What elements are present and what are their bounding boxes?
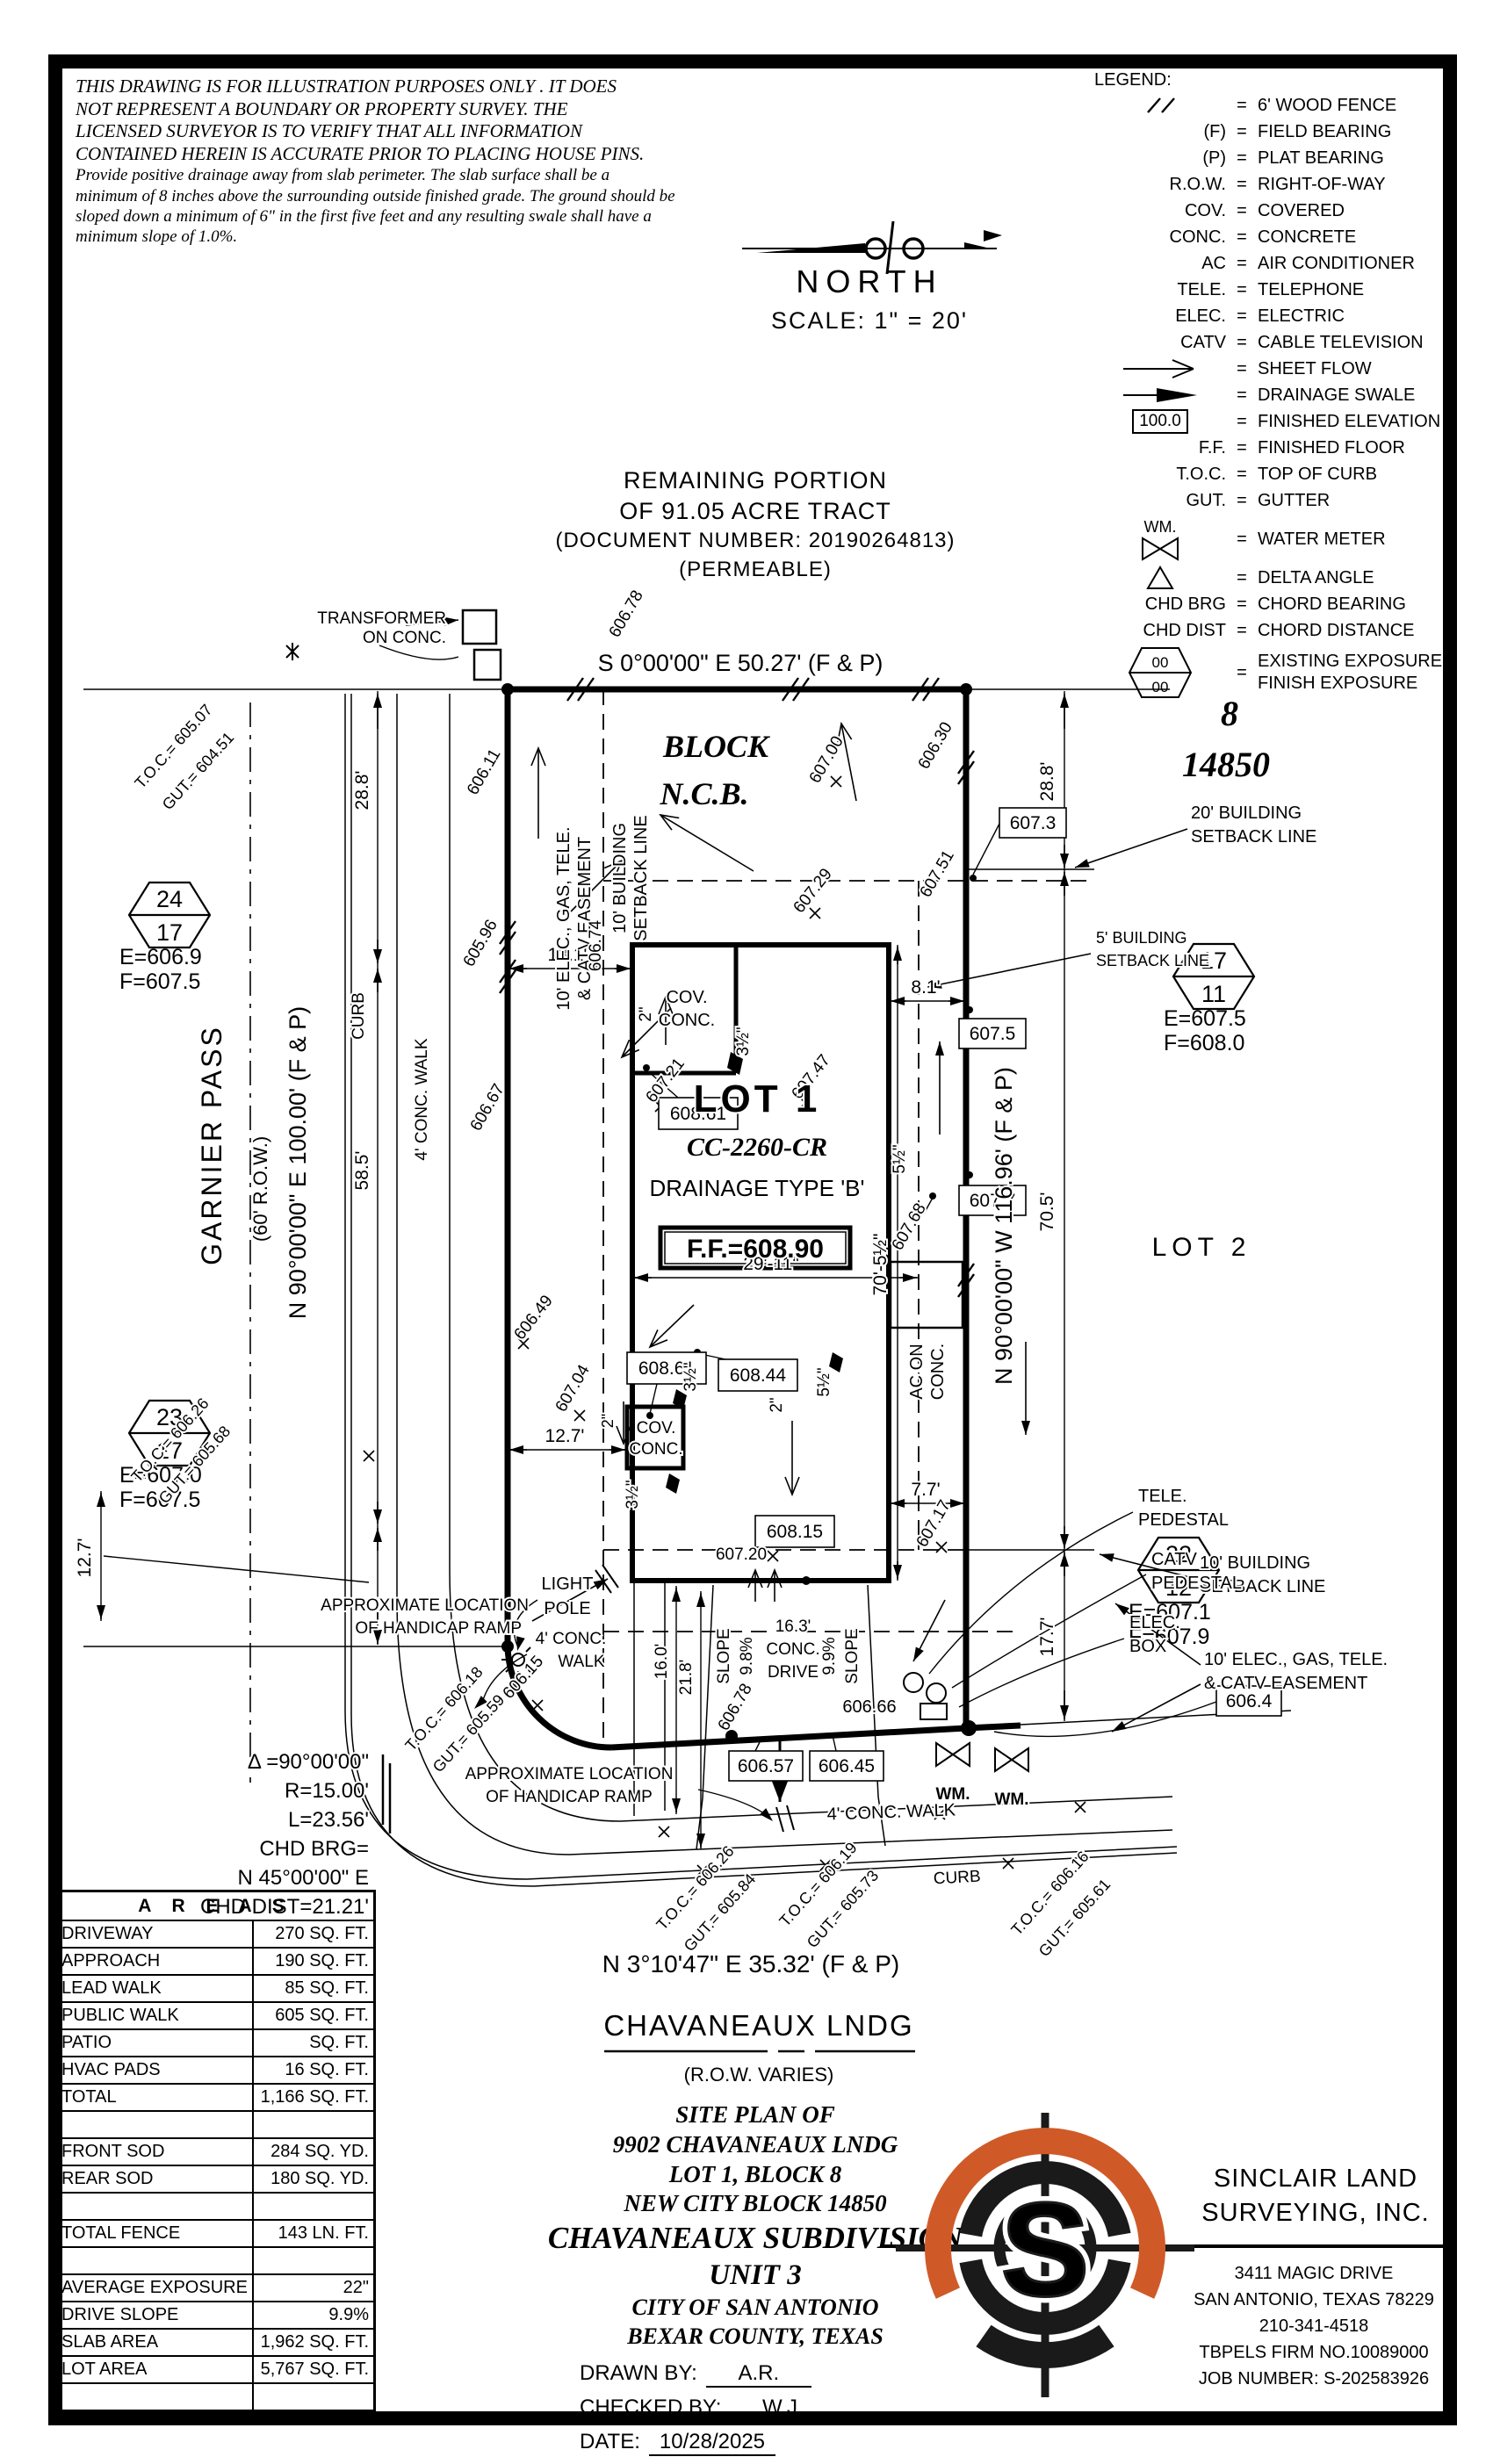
areas-label [56,2247,253,2274]
areas-label: TOTAL FENCE [56,2220,253,2247]
elev-607-3-value: 607.3 [1010,813,1057,833]
arrow-shaft [660,815,754,871]
leader-line-1 [973,824,999,875]
label-easement-south-1: 10' ELEC., GAS, TELE. [1204,1650,1388,1669]
areas-value: 1,962 SQ. FT. [253,2329,375,2356]
label-spot-606-49: 606.49 [510,1292,556,1344]
water-meter-icon [936,1743,970,1766]
legend-equals: = [1226,491,1258,511]
arrow-47 [672,1588,681,1602]
label-bearing-east: N 90°00'00" W 116.96' (F & P) [991,1067,1017,1385]
arrow-31 [1060,872,1069,896]
svg-text:00: 00 [1152,654,1169,671]
legend-symbol-text: CATV [1094,333,1226,353]
arrow-24 [373,940,382,963]
areas-value: SQ. FT. [253,2029,375,2057]
label-tele-pedestal-1: TELE. [1138,1487,1187,1506]
leader-line-5 [650,1384,657,1414]
label-dim-5half-1: 5½" [891,1144,909,1173]
label-cov-conc-2a: COV. [637,1419,676,1437]
point-dot-1 [501,683,514,695]
areas-value [253,2383,375,2411]
x-mark-13 [1003,1858,1013,1869]
disclaimer-line-3: LICENSED SURVEYOR IS TO VERIFY THAT ALL … [76,120,736,143]
firm-address-line-3: 210-341-4518 [1165,2313,1463,2339]
legend-item-telephone: TELE.=TELEPHONE [1094,277,1449,303]
legend-symbol-text: AC [1094,254,1226,274]
transformer-pad-icon [474,650,501,680]
legend-symbol-text: ELEC. [1094,306,1226,327]
label-light-pole-2: POLE [544,1599,590,1618]
water-meter-icon [995,1748,1028,1771]
arrow-head [509,1445,523,1454]
arrow-1 [531,748,545,839]
north-label: NORTH [720,263,1019,300]
disclaimer-line-7: sloped down a minimum of 6" in the first… [76,206,736,227]
arrow-head [373,1528,382,1542]
legend-symbol: F.F. [1094,438,1226,458]
legend-symbol-text: R.O.W. [1094,175,1226,195]
label-light-pole-1: LIGHT [542,1574,594,1594]
arrow-40 [948,997,964,1005]
arrow-head [1060,1705,1069,1719]
elev-606-4-value: 606.4 [1226,1691,1273,1711]
legend-label: DRAINAGE SWALE [1258,385,1415,407]
x-mark-2 [810,908,820,919]
legend-label: TELEPHONE [1258,279,1364,301]
legend-item-water-meter: WM.=WATER METER [1094,514,1449,565]
label-dim-3half-2: 3½" [682,1362,700,1391]
arrow-head [617,964,631,973]
legend-equals: = [1226,227,1258,248]
label-spot-606-78-drive: 606.78 [715,1681,756,1734]
legend-equals: = [1226,175,1258,195]
drainage-swale-icon [1122,385,1199,405]
arrow-head [893,1565,902,1579]
label-ncb-number: 14850 [1182,745,1270,784]
label-dim-3half-3: 3½" [624,1480,642,1509]
elev-607-5: 607.5 [959,1019,1026,1048]
tract-note-line-1: REMAINING PORTION [479,465,1032,496]
label-spot-606-74: 606.74 [587,920,605,972]
arrow-head [97,1493,105,1507]
elev-606-57: 606.57 [729,1751,803,1781]
remaining-tract-note: REMAINING PORTIONOF 91.05 ACRE TRACT (DO… [479,465,1032,584]
disclaimer-line-1: THIS DRAWING IS FOR ILLUSTRATION PURPOSE… [76,76,736,98]
label-ff-elevation: F.F.=608.90 [687,1235,824,1264]
areas-value: 1,166 SQ. FT. [253,2084,375,2111]
label-ac-on-conc-1: AC ON [907,1344,927,1399]
arrow-head [950,997,964,1005]
label-dim-28-8-west: 28.8' [352,771,372,811]
legend-label: FINISHED FLOOR [1258,437,1405,459]
transformer-icon [463,610,496,644]
legend-symbol [1094,357,1226,380]
arrow-11 [748,1570,762,1602]
arrow-head [771,1779,789,1802]
point-dot-2 [960,683,972,695]
arrow-head [1060,854,1069,868]
arrow-head [1075,859,1090,868]
areas-label: DRIVEWAY [56,1920,253,1948]
legend-equals: = [1226,201,1258,221]
arrow-41 [891,1499,906,1508]
legend-symbol: 100.0 [1094,409,1226,434]
arrow-15 [785,1421,799,1495]
legend-symbol: CHD BRG [1094,594,1226,615]
areas-label [56,2383,253,2411]
arrow-3 [838,724,856,801]
legend-item-concrete: CONC.=CONCRETE [1094,224,1449,250]
label-cov-conc-1b: CONC. [659,1011,715,1030]
disclaimer-line-4: CONTAINED HEREIN IS ACCURATE PRIOR TO PL… [76,143,736,166]
label-street-south-name: CHAVANEAUX LNDG [603,2009,913,2042]
label-slope-1a: SLOPE [715,1628,733,1683]
legend-label: WATER METER [1258,529,1386,551]
legend-label: EXISTING EXPOSUREFINISH EXPOSURE [1258,651,1442,695]
legend-symbol-text: CHD DIST [1094,621,1226,641]
areas-row-blank-12 [56,2247,375,2274]
label-slope-2b: SLOPE [843,1628,862,1683]
label-curve-length: L=23.56' [288,1808,369,1832]
label-ramp-note-1a: APPROXIMATE LOCATION [321,1596,529,1615]
label-walk-corner-2: WALK [558,1653,604,1671]
legend-item-air-conditioner: AC=AIR CONDITIONER [1094,250,1449,277]
label-lot-2-label: LOT 2 [1152,1233,1251,1262]
arrow-head [373,969,382,983]
legend-symbol: ELEC. [1094,306,1226,327]
ac-pad [891,1262,963,1328]
legend-equals: = [1226,663,1258,683]
point-dot-9 [643,1064,650,1071]
point-dot-5 [961,1720,977,1736]
legend-symbol-text: GUT. [1094,491,1226,511]
label-wm-label-1: WM. [935,1785,970,1804]
label-spot-606-66: 606.66 [842,1697,896,1717]
arrow-44 [899,1273,917,1282]
label-spot-605-96: 605.96 [460,917,501,970]
legend-label: ELECTRIC [1258,306,1345,328]
areas-row-lead-walk: LEAD WALK85 SQ. FT. [56,1975,375,2002]
legend-symbol-text: CONC. [1094,227,1226,248]
label-curb-south: CURB [933,1868,981,1889]
elev-606-45-value: 606.45 [819,1756,875,1776]
label-ac-on-conc-2: CONC. [928,1344,948,1400]
areas-value: 16 SQ. FT. [253,2057,375,2084]
label-cov-conc-2b: CONC. [629,1440,682,1459]
legend-equals: = [1226,568,1258,588]
areas-value: 143 LN. FT. [253,2220,375,2247]
credit-checked-by-: CHECKED BY:W.J. [580,2396,913,2422]
areas-label: LEAD WALK [56,1975,253,2002]
elev-608-15: 608.15 [755,1516,834,1547]
arrow-head [1060,1553,1069,1567]
arrow-34 [1060,1690,1069,1719]
areas-value: 5,767 SQ. FT. [253,2356,375,2383]
legend-symbol-text: TELE. [1094,280,1226,300]
label-dim-3half-1: 3½" [734,1027,753,1055]
areas-label: TOTAL [56,2084,253,2111]
label-spot-607-68: 607.68 [889,1200,930,1254]
areas-value: 180 SQ. YD. [253,2165,375,2193]
arrow-head [373,694,382,708]
label-lot-1-plan-code: CC-2260-CR [687,1133,827,1162]
legend-symbol: T.O.C. [1094,465,1226,485]
svg-text:00: 00 [1152,679,1169,695]
legend-item-drainage-swale: =DRAINAGE SWALE [1094,382,1449,408]
firm-address-line-2: SAN ANTONIO, TEXAS 78229 [1165,2287,1463,2313]
point-dot-8 [966,1171,973,1178]
disclaimer-drainage: Provide positive drainage away from slab… [76,165,736,247]
label-elec-box-1: ELEC. [1129,1613,1180,1632]
arrow-head [516,1636,525,1651]
legend-item-top-of-curb: T.O.C.=TOP OF CURB [1094,461,1449,487]
areas-label: DRIVE SLOPE [56,2302,253,2329]
legend-label: GUTTER [1258,490,1330,512]
arrow-52 [97,1605,105,1619]
firm-address-line-4: TBPELS FIRM NO.10089000 [1165,2339,1463,2366]
delta-icon [1145,565,1175,591]
arrow-head [1112,1721,1126,1732]
arrow-head [1115,1603,1129,1615]
plan-text-labels: S 0°00'00" E 50.27' (F & P)BLOCKN.C.B.81… [75,587,1388,2086]
legend-item-chord-bearing: CHD BRG=CHORD BEARING [1094,591,1449,617]
label-spot-606-67: 606.67 [467,1081,508,1135]
legend-symbol: WM. [1094,518,1226,561]
label-setback-north-2: SETBACK LINE [1191,827,1316,847]
legend-label: CABLE TELEVISION [1258,332,1424,354]
covered-porch-rear [627,1407,683,1468]
legend-symbol-text: (P) [1094,148,1226,169]
scale-label: SCALE: 1" = 20' [720,307,1019,335]
elev-607-3: 607.3 [999,808,1066,838]
wm-abbr: WM. [1140,518,1180,537]
fence-icon [1141,95,1179,116]
label-dim-70-5half: 70'-5½" [870,1233,891,1295]
legend-label: SHEET FLOW [1258,358,1372,380]
x-mark-9 [532,1700,543,1711]
areas-row-front-sod: FRONT SOD284 SQ. YD. [56,2138,375,2165]
areas-table: A R E A S DRIVEWAY270 SQ. FT.APPROACH190… [54,1890,376,2412]
areas-row-total: TOTAL1,166 SQ. FT. [56,2084,375,2111]
credit-value: W.J. [730,2396,835,2422]
legend-equals: = [1226,96,1258,116]
disclaimer-line-2: NOT REPRESENT A BOUNDARY OR PROPERTY SUR… [76,98,736,121]
elev-606-45: 606.45 [810,1751,884,1781]
credit-date-: DATE:10/28/2025 [580,2430,913,2456]
firm-name: SINCLAIR LAND SURVEYING, INC. [1175,2162,1456,2230]
areas-label: LOT AREA [56,2356,253,2383]
areas-row-blank-7 [56,2111,375,2138]
firm-address-line-5: JOB NUMBER: S-202583926 [1165,2366,1463,2392]
legend-symbol [1094,565,1226,591]
survey-point-icon [286,643,299,660]
point-dot-6 [970,875,977,882]
x-mark-10 [364,1451,374,1461]
areas-label [56,2193,253,2220]
setback-easement-lines [603,689,1094,1746]
areas-label: FRONT SOD [56,2138,253,2165]
areas-label: PATIO [56,2029,253,2057]
areas-value: 22" [253,2274,375,2302]
tele-pedestal-icon [904,1673,923,1692]
label-setback-west-1: 10' BUILDING [610,823,630,933]
areas-value: 284 SQ. YD. [253,2138,375,2165]
label-dim-16-0: 16.0' [653,1644,671,1680]
legend-item-plat-bearing: (P)=PLAT BEARING [1094,145,1449,171]
label-delta-angle: Δ =90°00'00" [248,1750,369,1774]
legend-title: LEGEND: [1094,70,1449,90]
areas-label: SLAB AREA [56,2329,253,2356]
legend-item-gutter: GUT.=GUTTER [1094,487,1449,514]
legend-symbol: R.O.W. [1094,175,1226,195]
point-dot-7 [966,1006,973,1013]
arrow-12 [768,1570,782,1602]
areas-value: 605 SQ. FT. [253,2002,375,2029]
areas-value: 270 SQ. FT. [253,1920,375,1948]
legend-symbol: TELE. [1094,280,1226,300]
areas-label: REAR SOD [56,2165,253,2193]
arrow-head [444,617,458,626]
label-spot-607-29: 607.29 [790,865,835,917]
areas-row-lot-area: LOT AREA5,767 SQ. FT. [56,2356,375,2383]
arrow-33 [1060,1553,1069,1576]
legend-symbol [1094,385,1226,405]
arrow-46 [893,1561,902,1579]
arrow-7 [935,1041,944,1135]
logo-letter-s: S [1000,2175,1089,2324]
legend-label: AIR CONDITIONER [1258,253,1415,275]
areas-row-patio: PATIOSQ. FT. [56,2029,375,2057]
areas-row-public-walk: PUBLIC WALK605 SQ. FT. [56,2002,375,2029]
legend-item-sheet-flow: =SHEET FLOW [1094,356,1449,382]
point-dot-10 [646,1412,653,1419]
areas-label: HVAC PADS [56,2057,253,2084]
legend-label: RIGHT-OF-WAY [1258,174,1386,196]
label-dim-2in-porch2: 2" [599,1414,617,1428]
label-lot-1-label: LOT 1 [694,1077,821,1120]
legend-label: COVERED [1258,200,1345,222]
arrow-22 [1112,1684,1201,1732]
areas-value [253,2247,375,2274]
label-transformer-note-2: ON CONC. [363,629,446,647]
label-cov-conc-1a: COV. [666,988,707,1007]
label-dim-7-7: 7.7' [911,1480,940,1500]
elev-608-15-value: 608.15 [767,1522,823,1542]
legend-symbol: (P) [1094,148,1226,169]
legend-symbol: CATV [1094,333,1226,353]
arrow-head [893,947,902,961]
point-dot-12 [929,1192,936,1200]
finished-elevation-box-icon: 100.0 [1132,409,1188,434]
label-drive-note-1: 16.3' [775,1617,811,1636]
label-dim-21-8: 21.8' [677,1660,696,1696]
arrow-head [1060,694,1069,708]
arrow-38 [609,1445,625,1454]
arrow-49 [696,1593,705,1607]
arrow-shaft [650,1305,694,1347]
title-block-credits: DRAWN BY:A.R.CHECKED BY:W.J.DATE:10/28/2… [580,2361,913,2456]
legend-equals: = [1226,412,1258,432]
credit-label: DRAWN BY: [580,2361,697,2385]
label-dim-28-8-east: 28.8' [1037,762,1057,802]
label-street-south-row: (R.O.W. VARIES) [684,2064,834,2086]
disclaimer-line-5: Provide positive drainage away from slab… [76,165,736,185]
credit-label: CHECKED BY: [580,2396,721,2419]
label-dim-2in-porch: 2" [637,1006,655,1021]
arrow-head [1060,1534,1069,1548]
areas-table-title: A R E A S [56,1891,375,1921]
arrow-head [1060,872,1069,886]
marker-24-17-top: 24 [156,886,183,912]
areas-row-blank-17 [56,2383,375,2411]
legend-item-existing-exposure: 0000=EXISTING EXPOSUREFINISH EXPOSURE [1094,644,1449,702]
label-setback-east-2: SETBACK LINE [1096,952,1209,969]
label-spot-606-78-north: 606.78 [606,587,647,641]
arrow-shaft [1112,1684,1201,1732]
legend-symbol-text: (F) [1094,122,1226,142]
label-easement-south-2: & CATV EASEMENT [1204,1674,1367,1693]
tract-note-line-2: OF 91.05 ACRE TRACT [479,496,1032,527]
label-street-west-name: GARNIER PASS [196,1025,227,1265]
disclaimer-caps: THIS DRAWING IS FOR ILLUSTRATION PURPOSE… [76,76,736,165]
marker-17-11-finish-elev: F=608.0 [1164,1031,1244,1055]
areas-row-driveway: DRIVEWAY270 SQ. FT. [56,1920,375,1948]
arrow-43 [634,1273,652,1282]
label-spot-606-11: 606.11 [464,746,505,798]
legend-item-electric: ELEC.=ELECTRIC [1094,303,1449,329]
arrow-37 [509,1445,527,1454]
label-dim-58-5: 58.5' [352,1151,372,1191]
label-bearing-south: N 3°10'47" E 35.32' (F & P) [602,1950,899,1978]
point-dot-13 [802,1576,811,1585]
x-mark-7 [936,1542,947,1553]
label-spot-607-04: 607.04 [552,1361,594,1415]
areas-value: 9.9% [253,2302,375,2329]
arrow-30 [1060,845,1069,868]
label-street-west-row: (60' R.O.W.) [249,1136,271,1242]
legend-equals: = [1226,254,1258,274]
label-setback-west-2: SETBACK LINE [631,815,651,940]
arrow-39 [891,997,906,1005]
areas-row-blank-10 [56,2193,375,2220]
arrow-9 [913,1600,945,1661]
disclaimer-line-6: minimum of 8 inches above the surroundin… [76,186,736,206]
firm-name-line1: SINCLAIR LAND [1175,2162,1456,2196]
disclaimer-note: THIS DRAWING IS FOR ILLUSTRATION PURPOSE… [76,76,736,247]
legend-item-covered: COV.=COVERED [1094,198,1449,224]
areas-label: AVERAGE EXPOSURE [56,2274,253,2302]
areas-row-approach: APPROACH190 SQ. FT. [56,1948,375,1975]
areas-row-slab-area: SLAB AREA1,962 SQ. FT. [56,2329,375,2356]
marker-24-17: 2417E=606.9F=607.5 [119,883,210,994]
areas-row-average-exposure: AVERAGE EXPOSURE22" [56,2274,375,2302]
label-easement-west-2: & CATV EASEMENT [575,837,595,1000]
label-dim-17-7: 17.7' [1037,1617,1057,1657]
legend-label: DELTA ANGLE [1258,567,1374,589]
legend-symbol-text: T.O.C. [1094,465,1226,485]
legend-equals: = [1226,385,1258,406]
legend-equals: = [1226,148,1258,169]
handicap-ramp-mark [776,1805,794,1832]
marker-24-17-finish-elev: F=607.5 [119,969,200,994]
label-spot-607-51: 607.51 [917,847,958,901]
leader-line-18 [104,1556,369,1582]
areas-row-drive-slope: DRIVE SLOPE9.9% [56,2302,375,2329]
areas-value: 85 SQ. FT. [253,1975,375,2002]
x-mark-14 [659,1826,669,1837]
label-dim-2in-rear: 2" [768,1397,786,1412]
